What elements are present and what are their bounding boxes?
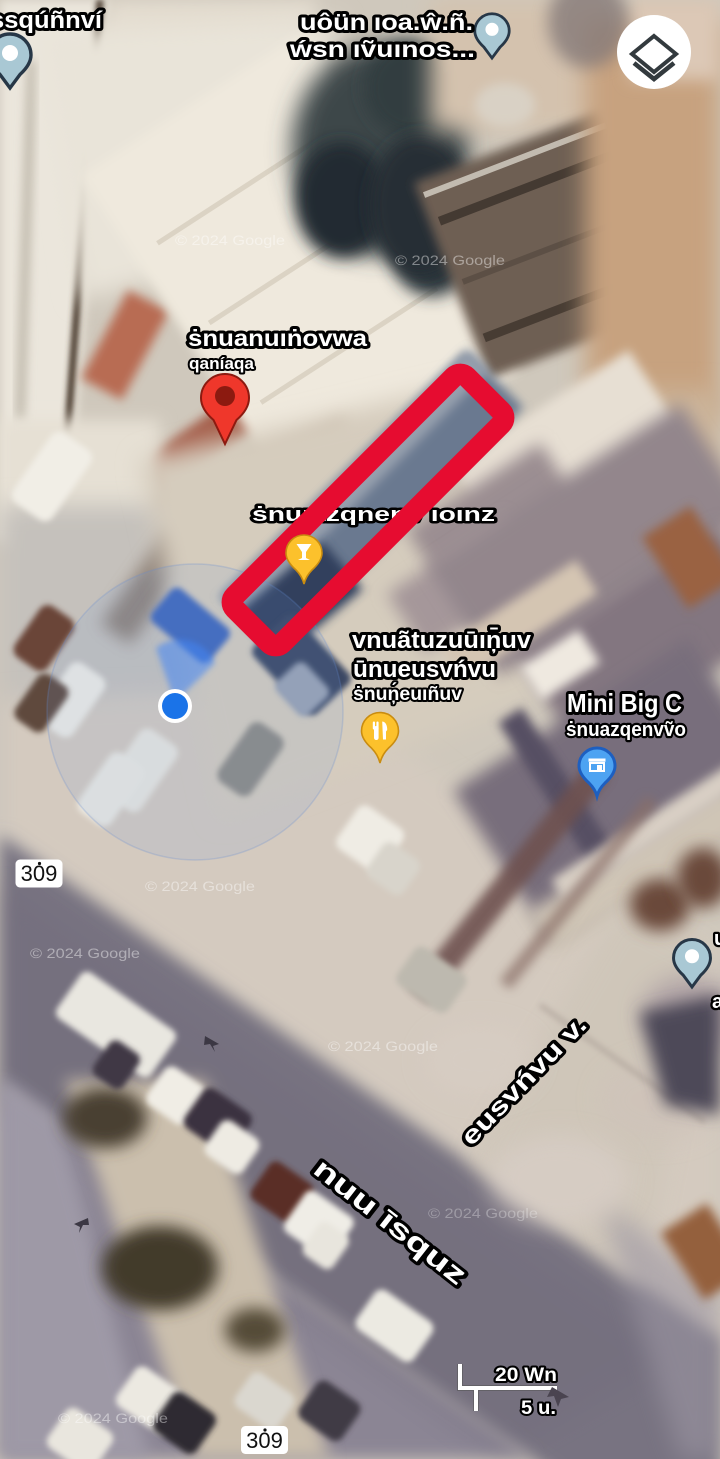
svg-text:ūnueusvńvu: ūnueusvńvu — [353, 656, 496, 683]
svg-text:nuu īsquz: nuu īsquz — [308, 1152, 473, 1290]
svg-text:5 u.: 5 u. — [521, 1398, 556, 1419]
svg-text:vnuãtuzuūıņ̄uv: vnuãtuzuūıņ̄uv — [352, 627, 532, 654]
svg-text:© 2024 Google: © 2024 Google — [428, 1206, 538, 1221]
svg-text:qaníaqa: qaníaqa — [189, 354, 255, 373]
svg-text:un: un — [714, 928, 720, 950]
svg-text:av: av — [712, 991, 720, 1013]
svg-text:ssqúñnví: ssqúñnví — [0, 7, 103, 34]
svg-text:© 2024 Google: © 2024 Google — [328, 1039, 438, 1054]
svg-text:ṡnuıazqnenv ıoınz: ṡnuıazqnenv ıoınz — [252, 504, 495, 526]
svg-text:ẃsn ıṽuınos...: ẃsn ıṽuınos... — [289, 36, 475, 62]
svg-text:© 2024 Google: © 2024 Google — [395, 253, 505, 268]
svg-text:ṡnuazqenvṽo: ṡnuazqenvṽo — [566, 719, 686, 741]
svg-text:309: 309 — [246, 1428, 283, 1453]
svg-text:ṡnuņ́euıñuv: ṡnuņ́euıñuv — [353, 683, 462, 705]
svg-text:© 2024 Google: © 2024 Google — [175, 233, 285, 248]
svg-text:Mini Big C: Mini Big C — [567, 688, 682, 718]
svg-text:© 2024 Google: © 2024 Google — [30, 946, 140, 961]
svg-text:eusvńvu v.: eusvńvu v. — [456, 1011, 593, 1151]
svg-text:uôün ıoa.ŵ.ñ.: uôün ıoa.ŵ.ñ. — [300, 9, 473, 35]
svg-text:© 2024 Google: © 2024 Google — [145, 879, 255, 894]
svg-text:© 2024 Google: © 2024 Google — [58, 1411, 168, 1426]
svg-text:ṡnuanuıṅovwa: ṡnuanuıṅovwa — [188, 325, 367, 351]
svg-text:20 Wn: 20 Wn — [495, 1365, 557, 1386]
